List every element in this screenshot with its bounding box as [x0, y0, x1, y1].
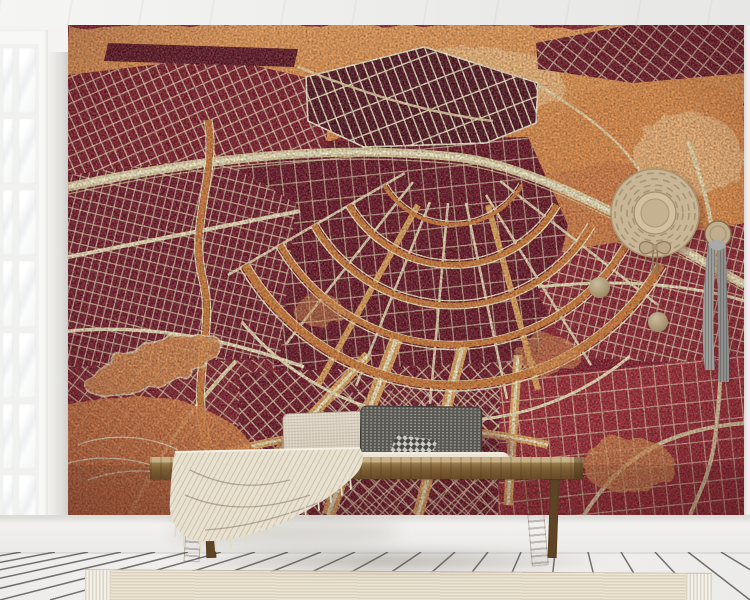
throw-blanket	[160, 440, 375, 558]
room-scene	[0, 0, 750, 600]
rug-fringe-right	[686, 574, 712, 600]
window-pane	[3, 119, 13, 184]
rug-fringe-left	[85, 570, 111, 600]
wall-knob-small-2	[648, 312, 668, 332]
window-pane	[19, 48, 36, 113]
straw-hat	[607, 166, 703, 278]
window-pane	[3, 261, 13, 326]
ceiling	[0, 0, 750, 26]
wall-knob-small-1	[589, 277, 610, 298]
grey-scarf	[696, 220, 744, 392]
window-pane	[19, 119, 36, 184]
right-wall-edge	[744, 25, 750, 552]
window-pane	[3, 48, 13, 113]
window-pane	[3, 333, 13, 398]
wall-corner-shading	[48, 52, 68, 579]
hat-bow	[639, 242, 670, 274]
window-pane	[3, 190, 13, 255]
window-pane	[19, 190, 36, 255]
left-wall	[0, 26, 68, 566]
window-pane	[19, 333, 36, 398]
window-pane	[19, 404, 36, 469]
window-pane	[19, 261, 36, 326]
window-pane-grid	[0, 44, 39, 544]
window-frame	[0, 30, 48, 575]
window-pane	[3, 404, 13, 469]
